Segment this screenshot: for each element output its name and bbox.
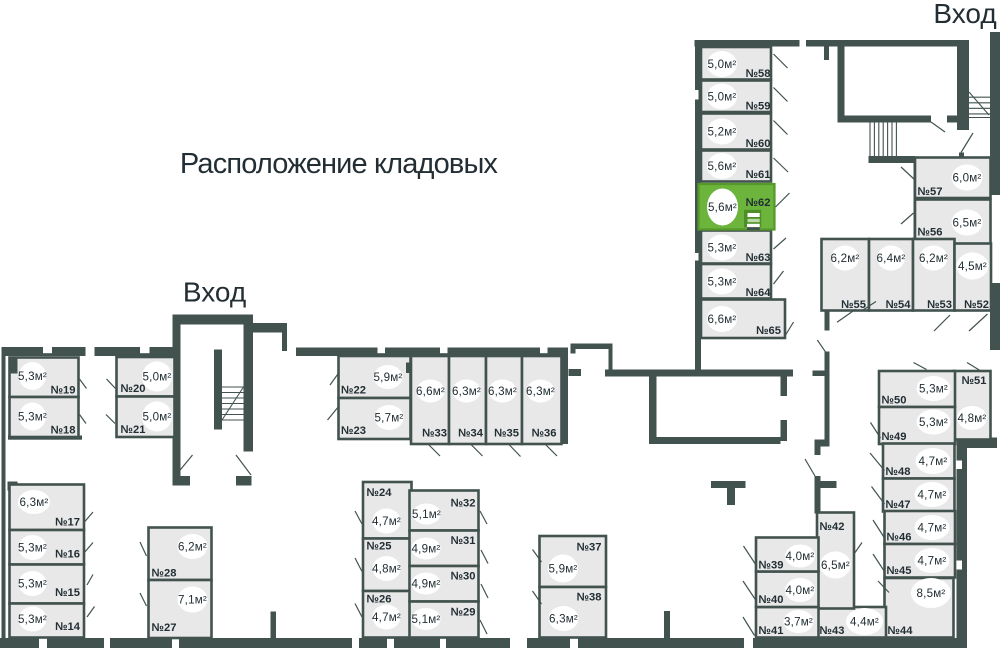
- svg-text:5,3м²: 5,3м²: [708, 242, 737, 255]
- svg-text:№35: №35: [494, 428, 519, 440]
- svg-text:№57: №57: [918, 186, 943, 198]
- svg-text:№51: №51: [962, 375, 987, 387]
- svg-text:№38: №38: [577, 592, 602, 604]
- svg-text:№63: №63: [746, 252, 771, 264]
- svg-text:4,9м²: 4,9м²: [412, 543, 441, 556]
- svg-text:№62: №62: [746, 197, 771, 209]
- svg-text:4,7м²: 4,7м²: [918, 522, 947, 535]
- svg-text:5,1м²: 5,1м²: [412, 613, 441, 626]
- svg-text:5,3м²: 5,3м²: [18, 613, 47, 626]
- svg-text:6,3м²: 6,3м²: [549, 613, 578, 626]
- svg-text:№41: №41: [759, 625, 784, 637]
- svg-text:6,2м²: 6,2м²: [178, 541, 207, 554]
- svg-text:№37: №37: [577, 542, 602, 554]
- svg-text:№24: №24: [367, 487, 393, 499]
- svg-text:5,9м²: 5,9м²: [374, 371, 403, 384]
- svg-text:№46: №46: [887, 532, 912, 544]
- svg-text:4,7м²: 4,7м²: [372, 611, 401, 624]
- svg-text:5,3м²: 5,3м²: [919, 416, 948, 429]
- svg-text:4,7м²: 4,7м²: [372, 515, 401, 528]
- svg-text:Вход: Вход: [183, 277, 246, 308]
- svg-text:№27: №27: [152, 622, 177, 634]
- svg-text:№25: №25: [367, 541, 392, 553]
- svg-text:5,0м²: 5,0м²: [143, 371, 172, 384]
- svg-text:№61: №61: [746, 169, 771, 181]
- svg-text:№29: №29: [451, 607, 476, 619]
- svg-text:6,6м²: 6,6м²: [708, 313, 737, 326]
- svg-text:№16: №16: [55, 549, 80, 561]
- svg-text:5,1м²: 5,1м²: [412, 508, 441, 521]
- svg-text:№32: №32: [451, 498, 476, 510]
- svg-text:№65: №65: [756, 325, 781, 337]
- svg-text:6,3м²: 6,3м²: [488, 385, 517, 398]
- svg-text:№48: №48: [886, 466, 911, 478]
- svg-text:№18: №18: [51, 425, 76, 437]
- svg-text:№22: №22: [341, 385, 366, 397]
- svg-text:4,5м²: 4,5м²: [958, 260, 987, 273]
- svg-text:№19: №19: [51, 385, 76, 397]
- svg-text:4,7м²: 4,7м²: [919, 455, 948, 468]
- svg-text:№44: №44: [888, 625, 914, 637]
- svg-text:Расположение кладовых: Расположение кладовых: [180, 148, 499, 180]
- svg-text:№59: №59: [746, 101, 771, 113]
- svg-text:6,3м²: 6,3м²: [526, 385, 555, 398]
- svg-text:№50: №50: [882, 395, 907, 407]
- svg-text:№43: №43: [820, 625, 845, 637]
- svg-text:№30: №30: [451, 571, 476, 583]
- svg-text:4,8м²: 4,8м²: [958, 412, 987, 425]
- svg-text:4,0м²: 4,0м²: [786, 584, 815, 597]
- svg-text:6,3м²: 6,3м²: [20, 496, 49, 509]
- svg-text:№60: №60: [746, 138, 771, 150]
- svg-text:3,7м²: 3,7м²: [784, 616, 813, 629]
- svg-text:5,7м²: 5,7м²: [375, 412, 404, 425]
- svg-text:5,3м²: 5,3м²: [18, 370, 47, 383]
- svg-text:№28: №28: [152, 568, 177, 580]
- svg-text:4,0м²: 4,0м²: [786, 550, 815, 563]
- svg-text:4,8м²: 4,8м²: [372, 563, 401, 576]
- svg-text:4,4м²: 4,4м²: [850, 616, 879, 629]
- svg-text:№15: №15: [55, 587, 80, 599]
- svg-text:5,2м²: 5,2м²: [708, 126, 737, 139]
- svg-text:№40: №40: [759, 594, 784, 606]
- svg-text:Вход: Вход: [933, 0, 996, 29]
- svg-text:№17: №17: [55, 517, 80, 529]
- svg-text:5,0м²: 5,0м²: [143, 411, 172, 424]
- svg-text:8,5м²: 8,5м²: [917, 587, 946, 600]
- svg-text:6,2м²: 6,2м²: [831, 252, 860, 265]
- svg-text:7,1м²: 7,1м²: [178, 594, 207, 607]
- svg-text:№53: №53: [927, 299, 952, 311]
- svg-text:5,0м²: 5,0м²: [708, 91, 737, 104]
- svg-text:№14: №14: [55, 621, 81, 633]
- svg-text:№23: №23: [341, 425, 366, 437]
- svg-text:№33: №33: [422, 428, 447, 440]
- svg-text:№26: №26: [367, 594, 392, 606]
- svg-text:№36: №36: [532, 428, 557, 440]
- svg-text:№52: №52: [964, 299, 989, 311]
- svg-text:№58: №58: [746, 68, 771, 80]
- svg-text:№20: №20: [121, 383, 146, 395]
- svg-text:6,5м²: 6,5м²: [953, 217, 982, 230]
- svg-text:№54: №54: [886, 299, 912, 311]
- svg-text:5,3м²: 5,3м²: [18, 542, 47, 555]
- svg-text:№45: №45: [887, 565, 912, 577]
- svg-text:№64: №64: [746, 287, 772, 299]
- svg-text:5,3м²: 5,3м²: [708, 276, 737, 289]
- svg-text:6,3м²: 6,3м²: [452, 385, 481, 398]
- svg-text:№42: №42: [820, 521, 845, 533]
- svg-text:6,4м²: 6,4м²: [877, 252, 906, 265]
- svg-text:№55: №55: [841, 299, 866, 311]
- svg-text:№47: №47: [886, 499, 911, 511]
- svg-text:5,3м²: 5,3м²: [18, 411, 47, 424]
- svg-text:№49: №49: [882, 431, 907, 443]
- svg-text:№56: №56: [918, 227, 943, 239]
- svg-text:№34: №34: [458, 428, 484, 440]
- svg-text:4,9м²: 4,9м²: [412, 578, 441, 591]
- svg-text:6,5м²: 6,5м²: [821, 559, 850, 572]
- svg-text:5,0м²: 5,0м²: [708, 58, 737, 71]
- svg-text:5,3м²: 5,3м²: [18, 578, 47, 591]
- svg-text:4,7м²: 4,7м²: [918, 555, 947, 568]
- svg-text:5,6м²: 5,6м²: [708, 201, 737, 214]
- svg-text:6,6м²: 6,6м²: [416, 385, 445, 398]
- svg-text:5,9м²: 5,9м²: [549, 563, 578, 576]
- svg-text:5,6м²: 5,6м²: [708, 160, 737, 173]
- svg-text:5,3м²: 5,3м²: [919, 383, 948, 396]
- svg-text:№31: №31: [451, 535, 476, 547]
- svg-text:№21: №21: [121, 424, 146, 436]
- svg-text:6,2м²: 6,2м²: [919, 252, 948, 265]
- svg-text:№39: №39: [759, 560, 784, 572]
- svg-text:6,0м²: 6,0м²: [953, 172, 982, 185]
- svg-text:4,7м²: 4,7м²: [918, 489, 947, 502]
